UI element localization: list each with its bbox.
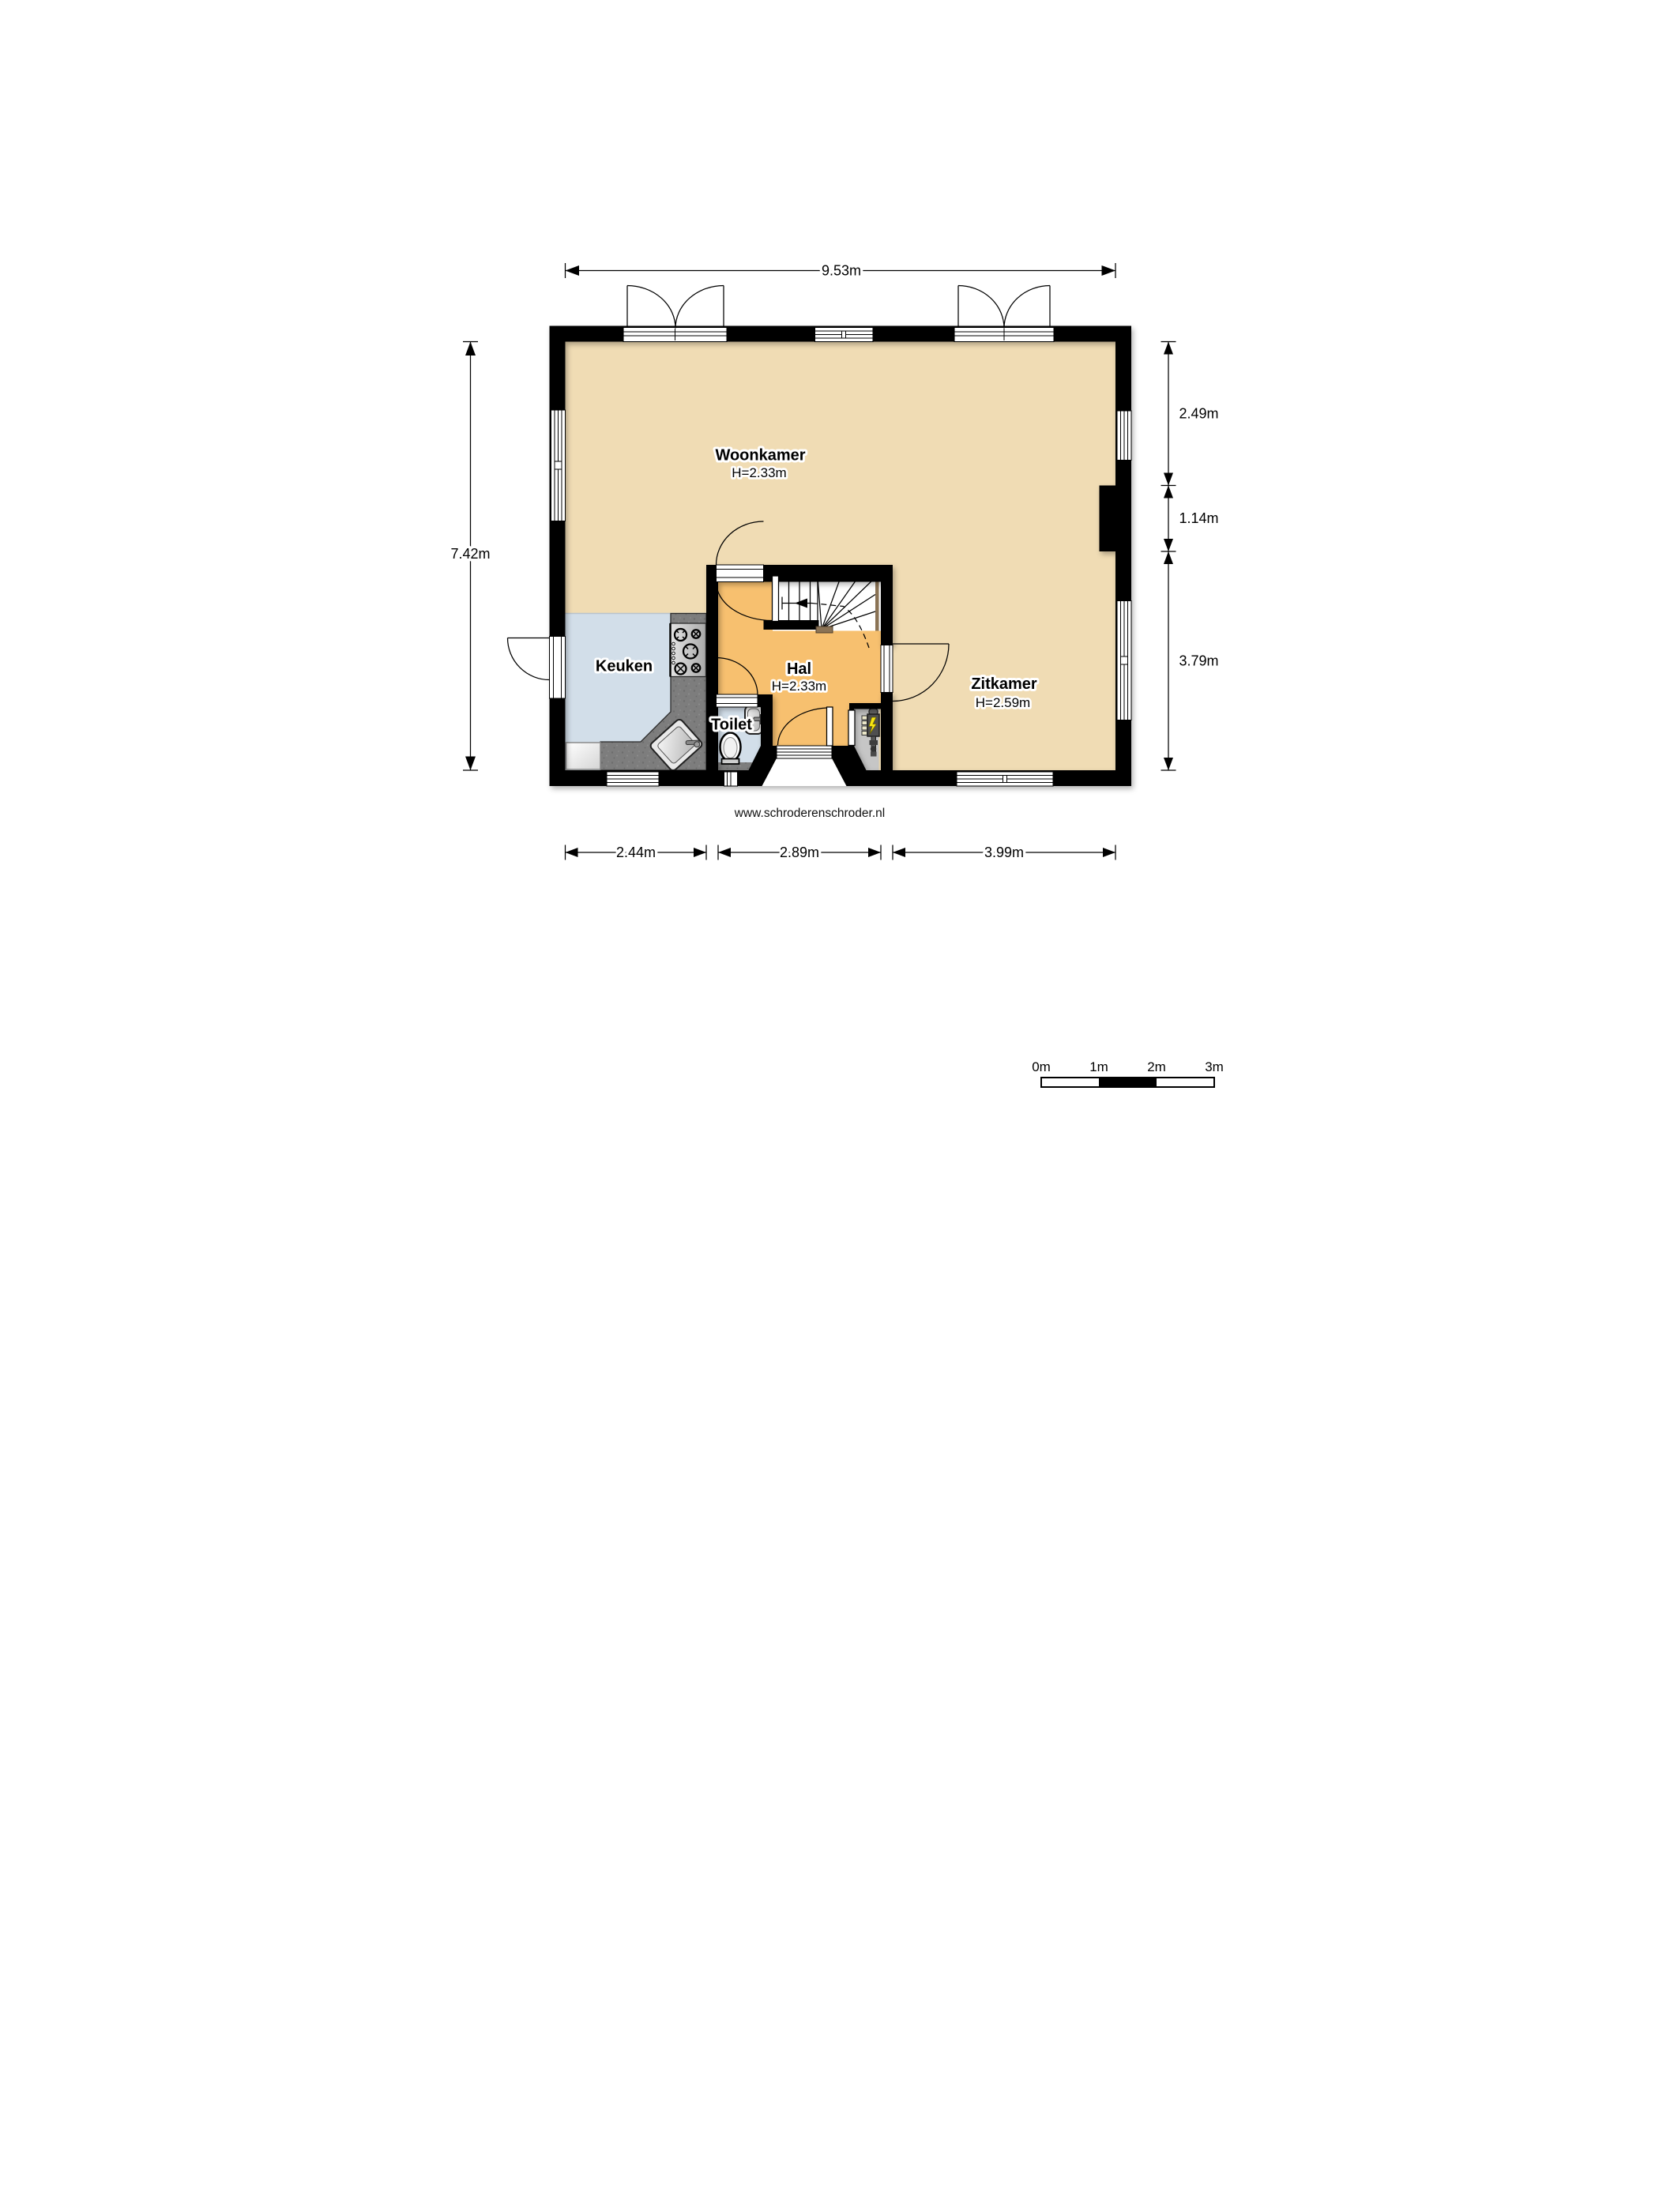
scale-bar-fill: [1099, 1078, 1157, 1087]
stove-icon: [671, 623, 706, 677]
floorplan-image: Woonkamer H=2.33m Zitkamer H=2.59m Keuke…: [415, 0, 1244, 1106]
window-bottom-zitkamer: [957, 772, 1053, 786]
scale-bar: 0m 1m 2m 3m: [1032, 1059, 1224, 1087]
dimension-bottom: 2.44m 2.89m 3.99m: [566, 845, 1116, 860]
website-text: www.schroderenschroder.nl: [734, 807, 885, 820]
door-meterkast: [848, 710, 855, 746]
dim-bottom-1: 2.44m: [616, 845, 656, 860]
french-door-left: [623, 286, 727, 342]
dim-right-2: 1.14m: [1179, 510, 1218, 526]
stairs-newel: [816, 626, 833, 633]
dim-bottom-3: 3.99m: [984, 845, 1024, 860]
label-zitkamer-height: H=2.59m: [976, 695, 1030, 710]
kitchen-side-door: [508, 637, 566, 699]
wc-icon: [720, 733, 741, 765]
window-top-middle: [815, 328, 874, 342]
floorplan-page: Woonkamer H=2.33m Zitkamer H=2.59m Keuke…: [415, 0, 1244, 1106]
label-hal-height: H=2.33m: [772, 679, 826, 694]
label-woonkamer: Woonkamer: [715, 447, 805, 465]
window-left: [551, 410, 566, 521]
floors: [566, 342, 1116, 771]
entrance-porch: [762, 758, 847, 786]
window-right-upper: [1117, 411, 1131, 461]
window-toilet-vent: [724, 772, 738, 786]
label-keuken: Keuken: [596, 658, 653, 675]
scale-label-1: 1m: [1089, 1059, 1108, 1074]
label-hal: Hal: [787, 660, 811, 678]
dim-bottom-2: 2.89m: [780, 845, 819, 860]
scale-label-3: 3m: [1205, 1059, 1224, 1074]
dim-right-1: 2.49m: [1179, 406, 1218, 422]
dimension-top: 9.53m: [566, 263, 1116, 279]
dim-right-3: 3.79m: [1179, 653, 1218, 669]
label-zitkamer: Zitkamer: [971, 675, 1037, 693]
dim-left-label: 7.42m: [450, 546, 490, 562]
scale-label-0: 0m: [1032, 1059, 1051, 1074]
window-bottom-kitchen: [607, 772, 659, 786]
dimension-right: 2.49m 1.14m 3.79m: [1161, 342, 1219, 771]
window-right-lower: [1117, 601, 1131, 720]
label-woonkamer-height: H=2.33m: [732, 465, 786, 480]
meterkast-top-wall: [849, 703, 881, 709]
dimension-left: 7.42m: [450, 342, 490, 771]
stairs-wood-right: [875, 574, 879, 631]
label-toilet: Toilet: [711, 717, 752, 734]
hal-right-wall-lower: [881, 693, 893, 771]
dim-top-label: 9.53m: [822, 263, 861, 279]
hal-right-wall-upper: [881, 570, 893, 645]
door-leaf-parked: [773, 576, 779, 622]
kitchen-appliance: [566, 743, 601, 769]
chimney-block: [1100, 486, 1132, 552]
french-door-right: [954, 286, 1054, 342]
scale-label-2: 2m: [1147, 1059, 1166, 1074]
